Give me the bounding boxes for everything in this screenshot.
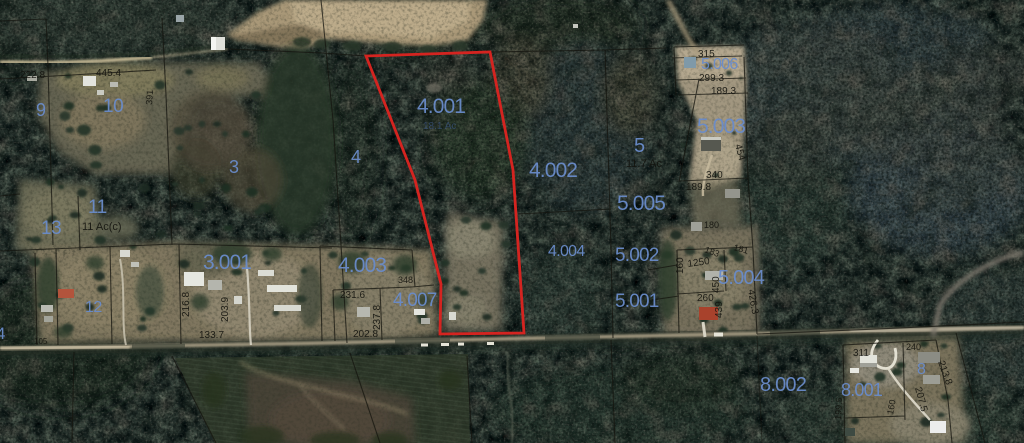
svg-text:222.8: 222.8 (20, 70, 45, 81)
svg-text:180: 180 (704, 220, 719, 230)
svg-text:439: 439 (714, 301, 725, 318)
svg-text:8: 8 (917, 361, 926, 378)
svg-text:11 Ac(c): 11 Ac(c) (82, 221, 122, 233)
svg-text:4: 4 (0, 324, 5, 343)
svg-text:340: 340 (706, 170, 723, 181)
svg-text:4: 4 (351, 147, 361, 167)
svg-text:4.001: 4.001 (417, 95, 465, 118)
svg-text:5.004: 5.004 (718, 267, 765, 289)
svg-text:5.003: 5.003 (697, 115, 745, 138)
svg-text:8.002: 8.002 (760, 374, 807, 396)
svg-text:3.001: 3.001 (203, 251, 251, 274)
svg-text:5.001: 5.001 (615, 291, 659, 312)
svg-text:237.8: 237.8 (372, 305, 383, 330)
svg-text:445.4: 445.4 (96, 68, 121, 79)
svg-text:5: 5 (634, 135, 645, 157)
svg-text:11: 11 (88, 197, 107, 218)
svg-text:260: 260 (697, 293, 714, 304)
svg-text:4.003: 4.003 (338, 254, 386, 277)
svg-text:9: 9 (36, 100, 46, 120)
svg-text:4.007: 4.007 (393, 290, 437, 311)
svg-text:4.004: 4.004 (548, 243, 585, 260)
svg-text:10: 10 (103, 96, 123, 117)
svg-text:5.002: 5.002 (615, 245, 659, 266)
svg-text:299.3: 299.3 (699, 73, 724, 84)
svg-text:11.7 Ac: 11.7 Ac (626, 158, 662, 170)
svg-text:18.1 Ac: 18.1 Ac (423, 121, 456, 132)
svg-text:240: 240 (906, 342, 921, 352)
svg-text:133.7: 133.7 (199, 330, 224, 341)
svg-text:8.001: 8.001 (841, 380, 883, 400)
svg-text:391: 391 (144, 89, 155, 105)
svg-text:5.005: 5.005 (617, 192, 665, 215)
svg-text:12: 12 (85, 299, 102, 316)
svg-text:203.9: 203.9 (220, 297, 231, 322)
svg-text:348: 348 (398, 275, 413, 285)
svg-text:189.8: 189.8 (686, 182, 711, 193)
svg-text:216.8: 216.8 (181, 292, 192, 317)
svg-text:105: 105 (34, 337, 48, 346)
svg-text:199.5: 199.5 (833, 397, 844, 420)
svg-text:3: 3 (229, 157, 239, 177)
svg-text:5.006: 5.006 (701, 56, 738, 73)
svg-text:4.002: 4.002 (529, 159, 577, 182)
svg-text:13: 13 (41, 218, 61, 239)
svg-text:231.6: 231.6 (340, 290, 365, 301)
svg-text:189.3: 189.3 (711, 86, 736, 97)
svg-text:311: 311 (853, 348, 869, 359)
svg-text:160: 160 (675, 257, 686, 274)
